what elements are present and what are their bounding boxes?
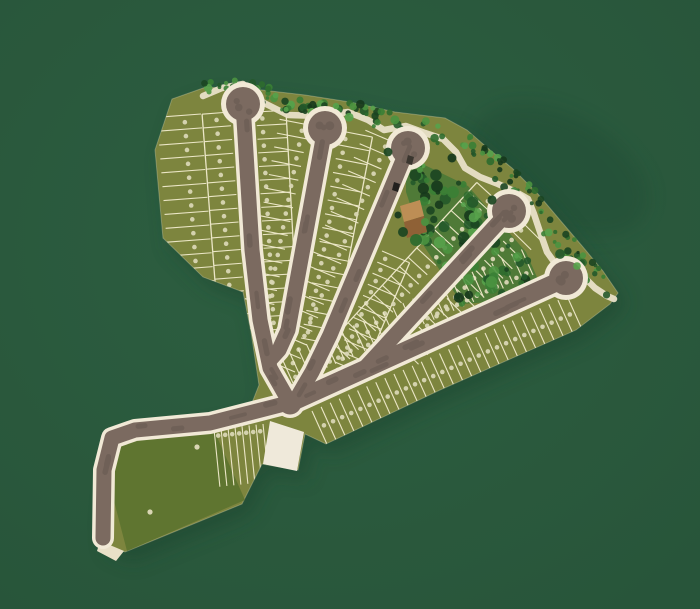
field-tree-dot — [194, 444, 199, 449]
building-tree — [421, 218, 429, 226]
street-1-bulb — [226, 87, 260, 121]
building-tree — [410, 234, 422, 246]
building-tree — [398, 227, 408, 237]
site-plan-image: Subdivision master plan aerial site map — [0, 0, 700, 609]
building-tree — [395, 212, 402, 219]
field-tree-dot — [147, 509, 152, 514]
site-plan-svg: Subdivision master plan aerial site map — [0, 0, 700, 609]
